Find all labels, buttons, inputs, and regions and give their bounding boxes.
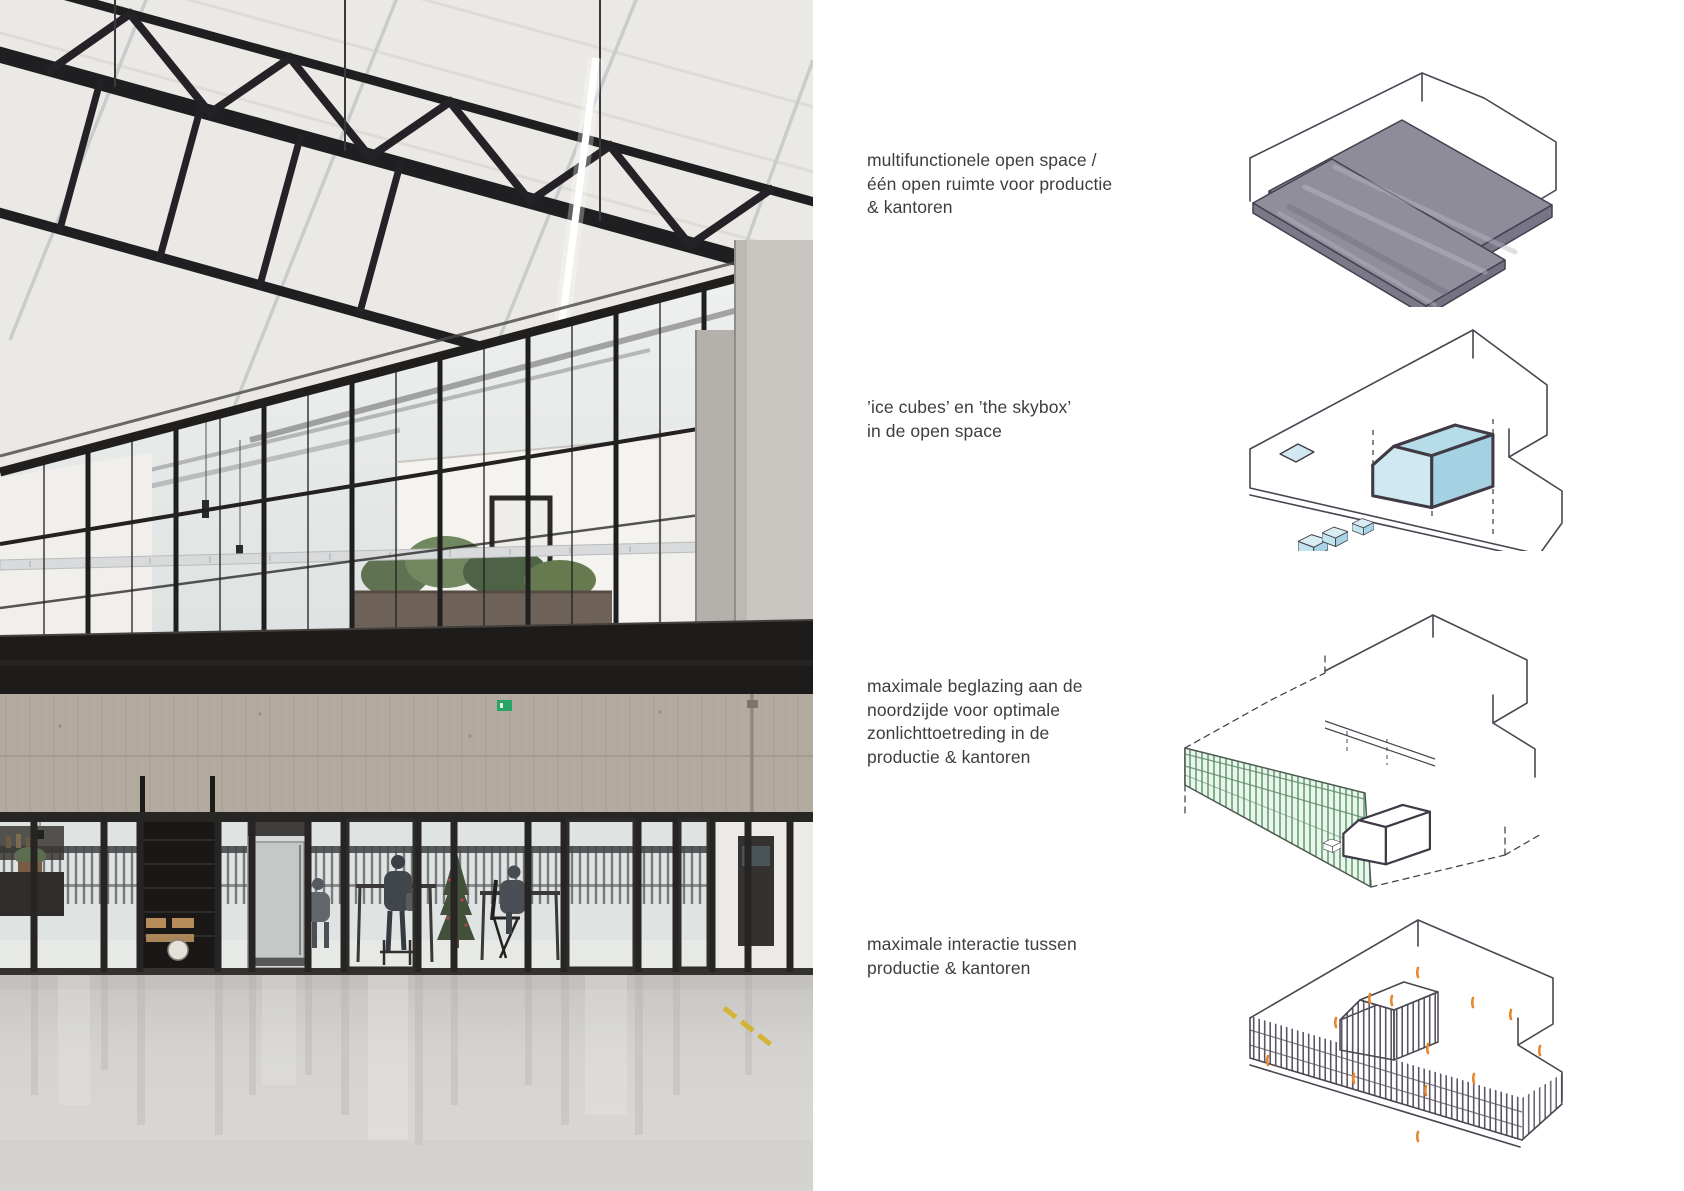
caption-line: noordzijde voor optimale [867,699,1083,723]
caption-line: maximale interactie tussen [867,933,1077,957]
polished-concrete-floor [0,975,813,1191]
caption-open-space: multifunctionele open space / één open r… [867,149,1112,220]
caption-line: ’ice cubes’ en ’the skybox’ [867,396,1071,420]
glazed-north-facade [1185,748,1371,887]
caption-line: één open ruimte voor productie [867,173,1112,197]
display-fridge [248,820,310,968]
building-outline [1185,615,1535,785]
right-interior [712,816,813,968]
caption-line: in de open space [867,420,1071,444]
concrete-mezzanine-band [0,694,813,816]
caption-line: zonlichttoetreding in de [867,722,1083,746]
caption-line: multifunctionele open space / [867,149,1112,173]
caption-beglazing: maximale beglazing aan de noordzijde voo… [867,675,1083,769]
caption-line: maximale beglazing aan de [867,675,1083,699]
ice-cubes-skybox-diagram [1240,316,1570,551]
caption-line: productie & kantoren [867,957,1077,981]
exit-sign [497,700,512,711]
open-space-diagram [1235,57,1565,307]
caption-line: productie & kantoren [867,746,1083,770]
office-wall-left [0,452,152,642]
caption-ice-cubes: ’ice cubes’ en ’the skybox’ in de open s… [867,396,1071,443]
ice-slab [1280,444,1314,462]
beglazing-diagram [1175,553,1570,898]
caption-line: & kantoren [867,196,1112,220]
skybox-volume [1373,425,1493,508]
industrial-hall-photo [0,0,813,1191]
skybox-volume [1340,982,1438,1060]
presentation-page: multifunctionele open space / één open r… [0,0,1684,1191]
caption-interactie: maximale interactie tussen productie & k… [867,933,1077,980]
interactie-diagram [1240,898,1570,1158]
